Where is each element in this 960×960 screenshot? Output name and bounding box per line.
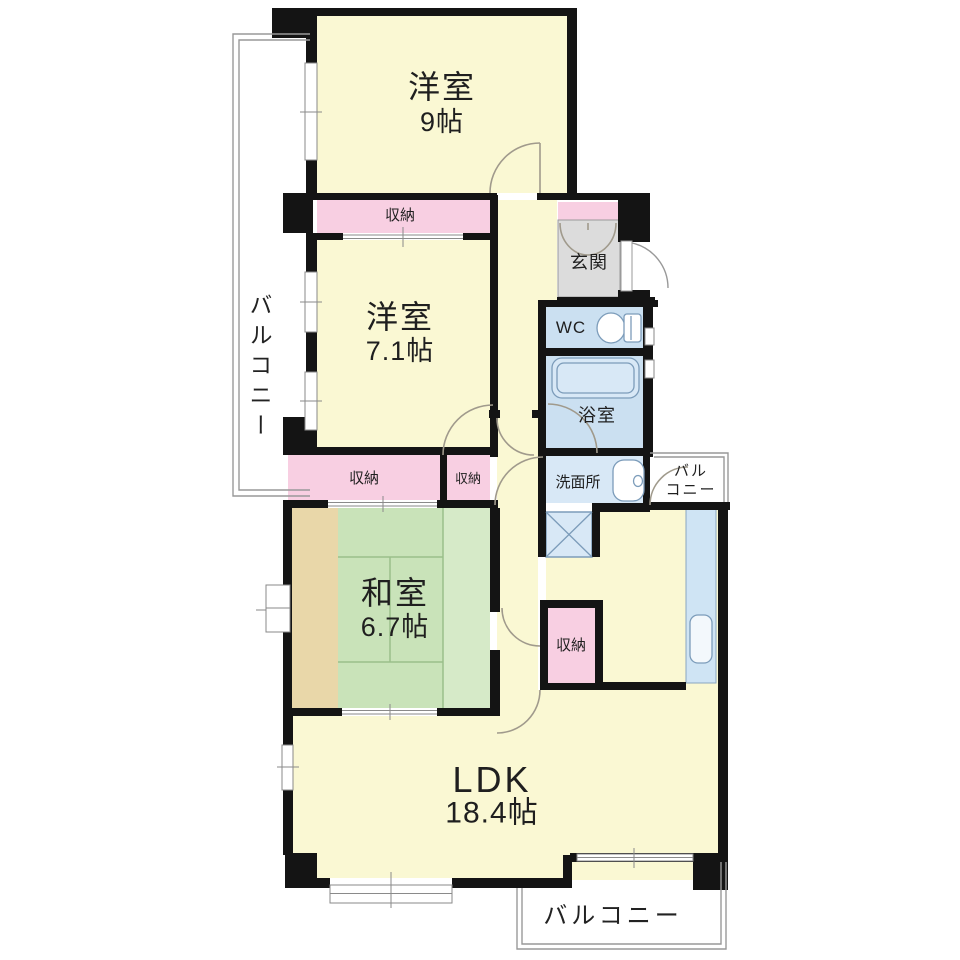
- kitchen-sink-icon: [690, 615, 712, 663]
- label-entrance: 玄関: [570, 254, 608, 273]
- japanese-room-tatami-right: [443, 508, 490, 708]
- label-toilet: WC: [556, 319, 586, 337]
- toilet-tank-icon: [624, 314, 641, 342]
- label-storage-wide: 収納: [349, 471, 379, 487]
- label-storage-small: 収納: [455, 472, 481, 486]
- label-bath: 浴室: [578, 407, 616, 426]
- label-western9-name: 洋室: [408, 71, 476, 105]
- label-western9-size: 9帖: [420, 108, 464, 136]
- label-balcony-bottom: バルコニー: [543, 903, 683, 928]
- japanese-room-wood-strip: [292, 508, 338, 708]
- entrance-cabinet-floor: [558, 202, 620, 220]
- label-ldk-name: LDK: [452, 761, 531, 799]
- vent-wc: [645, 328, 654, 345]
- label-balcony-right-line1: バル: [665, 462, 716, 481]
- pipe-space-box: [256, 585, 290, 632]
- label-balcony-left: バルコニー: [242, 293, 276, 443]
- label-balcony-right-line2: コニー: [665, 481, 716, 500]
- label-ldk-size: 18.4帖: [445, 797, 538, 829]
- label-japanese-name: 和室: [361, 577, 429, 611]
- entry-door: [621, 241, 668, 291]
- floorplan: 洋室 9帖 収納 洋室 7.1帖 バルコニー 玄関 WC 浴室 洗面所 収納 収…: [0, 0, 960, 960]
- label-storage-top: 収納: [385, 208, 415, 224]
- vent-bath: [645, 360, 654, 378]
- hall-upper-floor: [497, 200, 557, 305]
- toilet-bowl-icon: [597, 313, 625, 343]
- label-storage-right: 収納: [556, 638, 586, 654]
- label-western71-name: 洋室: [366, 301, 434, 335]
- hall-column-floor: [497, 305, 538, 690]
- washbasin-tap: [634, 476, 643, 487]
- label-washroom: 洗面所: [555, 475, 600, 491]
- label-japanese-size: 6.7帖: [361, 613, 430, 641]
- bathtub-icon: [552, 358, 639, 398]
- label-western71-size: 7.1帖: [366, 337, 435, 365]
- label-balcony-right: バル コニー: [665, 462, 716, 500]
